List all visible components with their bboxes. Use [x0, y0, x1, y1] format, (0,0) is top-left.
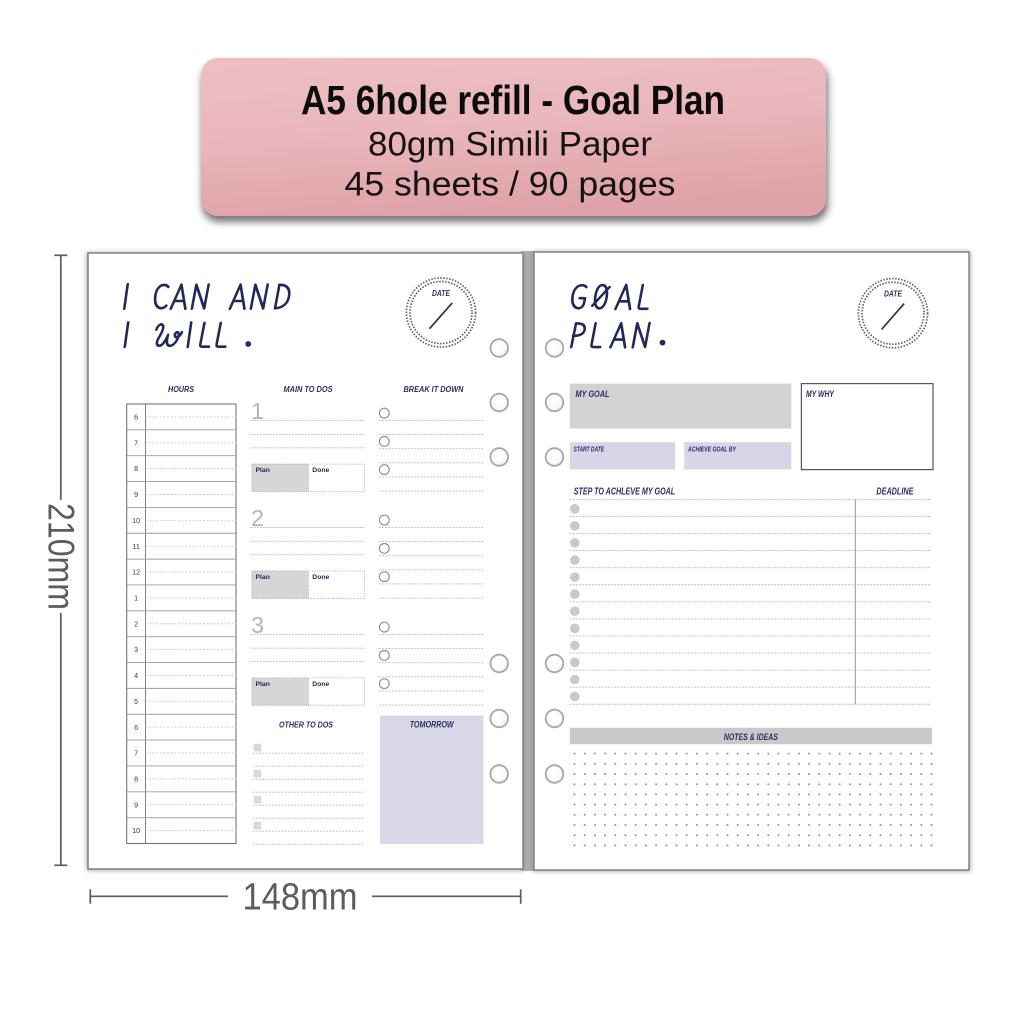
svg-text:148mm: 148mm	[243, 877, 358, 919]
svg-text:210mm: 210mm	[40, 503, 81, 610]
svg-text:Done: Done	[312, 681, 329, 688]
svg-text:7: 7	[134, 439, 138, 447]
svg-text:11: 11	[132, 543, 139, 551]
svg-text:START DATE: START DATE	[574, 447, 605, 454]
svg-text:9: 9	[134, 801, 138, 809]
svg-text:2: 2	[134, 620, 138, 628]
svg-text:8: 8	[134, 775, 138, 783]
svg-text:1: 1	[134, 594, 138, 602]
svg-text:10: 10	[132, 827, 140, 835]
svg-text:80gm Simili Paper: 80gm Simili Paper	[368, 126, 652, 164]
svg-text:ACHIEVE GOAL BY: ACHIEVE GOAL BY	[687, 447, 737, 454]
svg-text:45 sheets / 90 pages: 45 sheets / 90 pages	[345, 166, 676, 204]
svg-text:OTHER TO DOS: OTHER TO DOS	[279, 720, 333, 730]
svg-text:5: 5	[134, 698, 138, 706]
svg-text:10: 10	[132, 517, 140, 525]
svg-text:Plan: Plan	[256, 467, 270, 474]
svg-text:A5 6hole refill - Goal Plan: A5 6hole refill - Goal Plan	[301, 77, 725, 123]
svg-text:8: 8	[134, 465, 138, 473]
svg-text:MAIN TO DOS: MAIN TO DOS	[284, 384, 333, 394]
svg-text:TOMORROW: TOMORROW	[410, 720, 455, 731]
svg-text:DATE: DATE	[432, 289, 450, 298]
svg-text:3: 3	[134, 646, 138, 654]
svg-text:7: 7	[134, 750, 138, 758]
svg-text:4: 4	[134, 672, 138, 680]
svg-text:DEADLINE: DEADLINE	[876, 486, 914, 498]
svg-text:MY GOAL: MY GOAL	[576, 389, 610, 399]
svg-text:12: 12	[132, 569, 140, 577]
svg-text:6: 6	[134, 414, 138, 422]
svg-text:Done: Done	[312, 467, 329, 474]
svg-text:9: 9	[134, 491, 138, 499]
svg-text:6: 6	[134, 724, 138, 732]
svg-text:Plan: Plan	[256, 574, 270, 581]
svg-text:MY WHY: MY WHY	[806, 389, 835, 399]
svg-text:BREAK IT DOWN: BREAK IT DOWN	[404, 384, 465, 394]
svg-text:HOURS: HOURS	[168, 384, 194, 394]
svg-text:Plan: Plan	[256, 681, 270, 688]
svg-text:STEP TO ACHLEVE MY GOAL: STEP TO ACHLEVE MY GOAL	[574, 486, 676, 498]
svg-text:Done: Done	[312, 574, 329, 581]
svg-text:NOTES & IDEAS: NOTES & IDEAS	[724, 732, 779, 742]
svg-text:DATE: DATE	[884, 290, 902, 299]
